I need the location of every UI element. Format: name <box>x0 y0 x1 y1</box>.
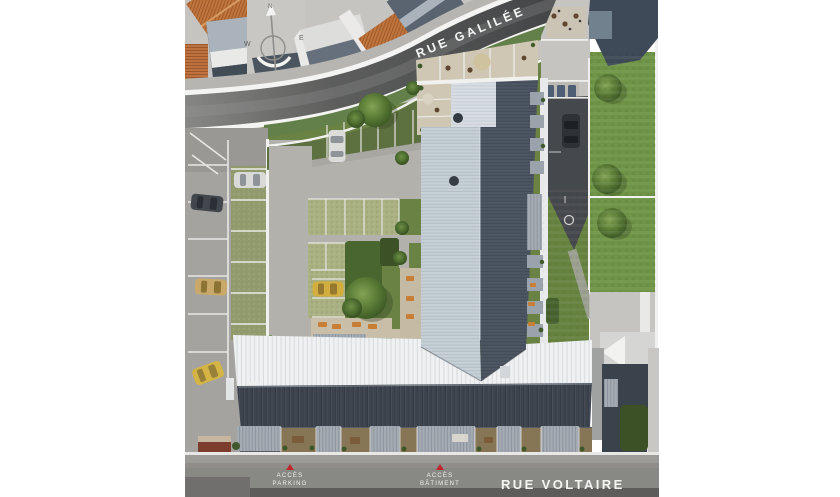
svg-text:ACCÈS: ACCÈS <box>277 472 304 479</box>
svg-text:RUE VOLTAIRE: RUE VOLTAIRE <box>501 477 625 492</box>
svg-text:W: W <box>244 41 251 48</box>
svg-text:BÂTIMENT: BÂTIMENT <box>420 480 460 487</box>
svg-text:ACCÈS: ACCÈS <box>427 472 454 479</box>
svg-text:N: N <box>268 4 272 10</box>
svg-text:PARKING: PARKING <box>273 481 308 487</box>
svg-text:E: E <box>299 35 304 42</box>
